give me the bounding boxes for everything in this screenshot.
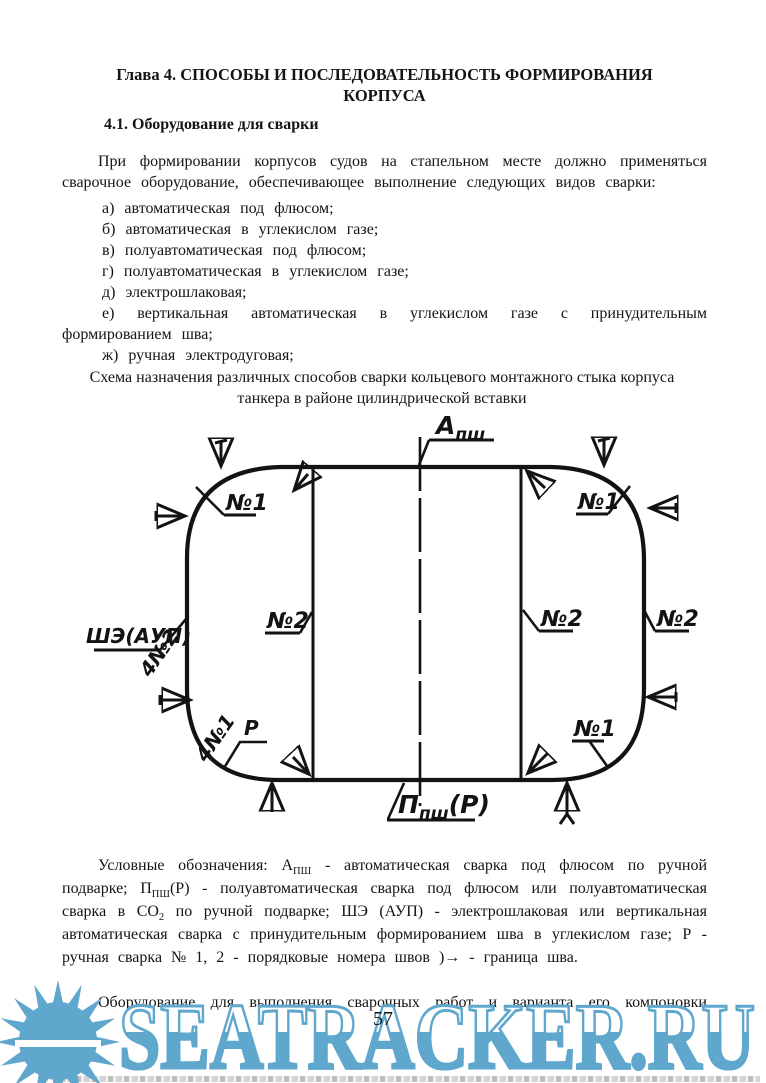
document-page: Глава 4. СПОСОБЫ И ПОСЛЕДОВАТЕЛЬНОСТЬ ФО… (0, 0, 766, 1083)
welding-type-item: а) автоматическая под флюсом; (62, 198, 707, 219)
hull-weld-diagram: Апш №1 №1 ШЭ(АУП) 4№2 №2 №2 №2 №1 (0, 410, 766, 840)
figure-caption: Схема назначения различных способов свар… (82, 367, 682, 409)
weld-boundary-arrow (296, 474, 308, 488)
label-leader (224, 742, 267, 768)
weld-boundary-arrow (293, 757, 307, 772)
welding-types-list: а) автоматическая под флюсом; б) автомат… (62, 198, 707, 366)
welding-type-item: в) полуавтоматическая под флюсом; (62, 240, 707, 261)
section-heading: 4.1. Оборудование для сварки (62, 114, 707, 135)
label-r: Р (244, 716, 259, 740)
weld-boundary-arrow (529, 473, 545, 488)
intro-paragraph: При формировании корпусов судов на стапе… (62, 151, 707, 193)
weld-boundary-arrow (530, 753, 548, 771)
legend-paragraph: Условные обозначения: АПШ - автоматическ… (62, 854, 707, 969)
welding-type-item: б) автоматическая в углекислом газе; (62, 219, 707, 240)
arrow-tail-tick (215, 440, 227, 443)
label-no2-midright-inner: №2 (540, 607, 583, 632)
arrow-tail-tick (567, 814, 574, 824)
label-no1-bottomright: №1 (573, 717, 616, 742)
legend-text: Условные обозначения: А (98, 857, 293, 874)
label-no1-topright: №1 (577, 490, 620, 515)
welding-type-item: ж) ручная электродуговая; (62, 345, 707, 366)
welding-type-item: г) полуавтоматическая в углекислом газе; (62, 261, 707, 282)
arrow-tail-tick (560, 814, 567, 824)
welding-type-item: д) электрошлаковая; (62, 282, 707, 303)
legend-subscript: ПШ (152, 889, 170, 900)
legend-subscript: ПШ (293, 866, 311, 877)
welding-type-item: е) вертикальная автоматическая в углекис… (62, 303, 707, 345)
scan-noise-strip (60, 1076, 760, 1082)
label-no1-topleft: №1 (225, 491, 268, 516)
label-no2-right-outer: №2 (656, 607, 699, 632)
arrow-tail-tick (598, 438, 610, 441)
chapter-title: Глава 4. СПОСОБЫ И ПОСЛЕДОВАТЕЛЬНОСТЬ ФО… (62, 64, 707, 106)
chapter-title-line2: КОРПУСА (62, 85, 707, 106)
label-leader (523, 610, 539, 631)
label-leader (590, 742, 607, 766)
page-number: 57 (0, 1008, 766, 1031)
chapter-title-line1: Глава 4. СПОСОБЫ И ПОСЛЕДОВАТЕЛЬНОСТЬ ФО… (62, 64, 707, 85)
